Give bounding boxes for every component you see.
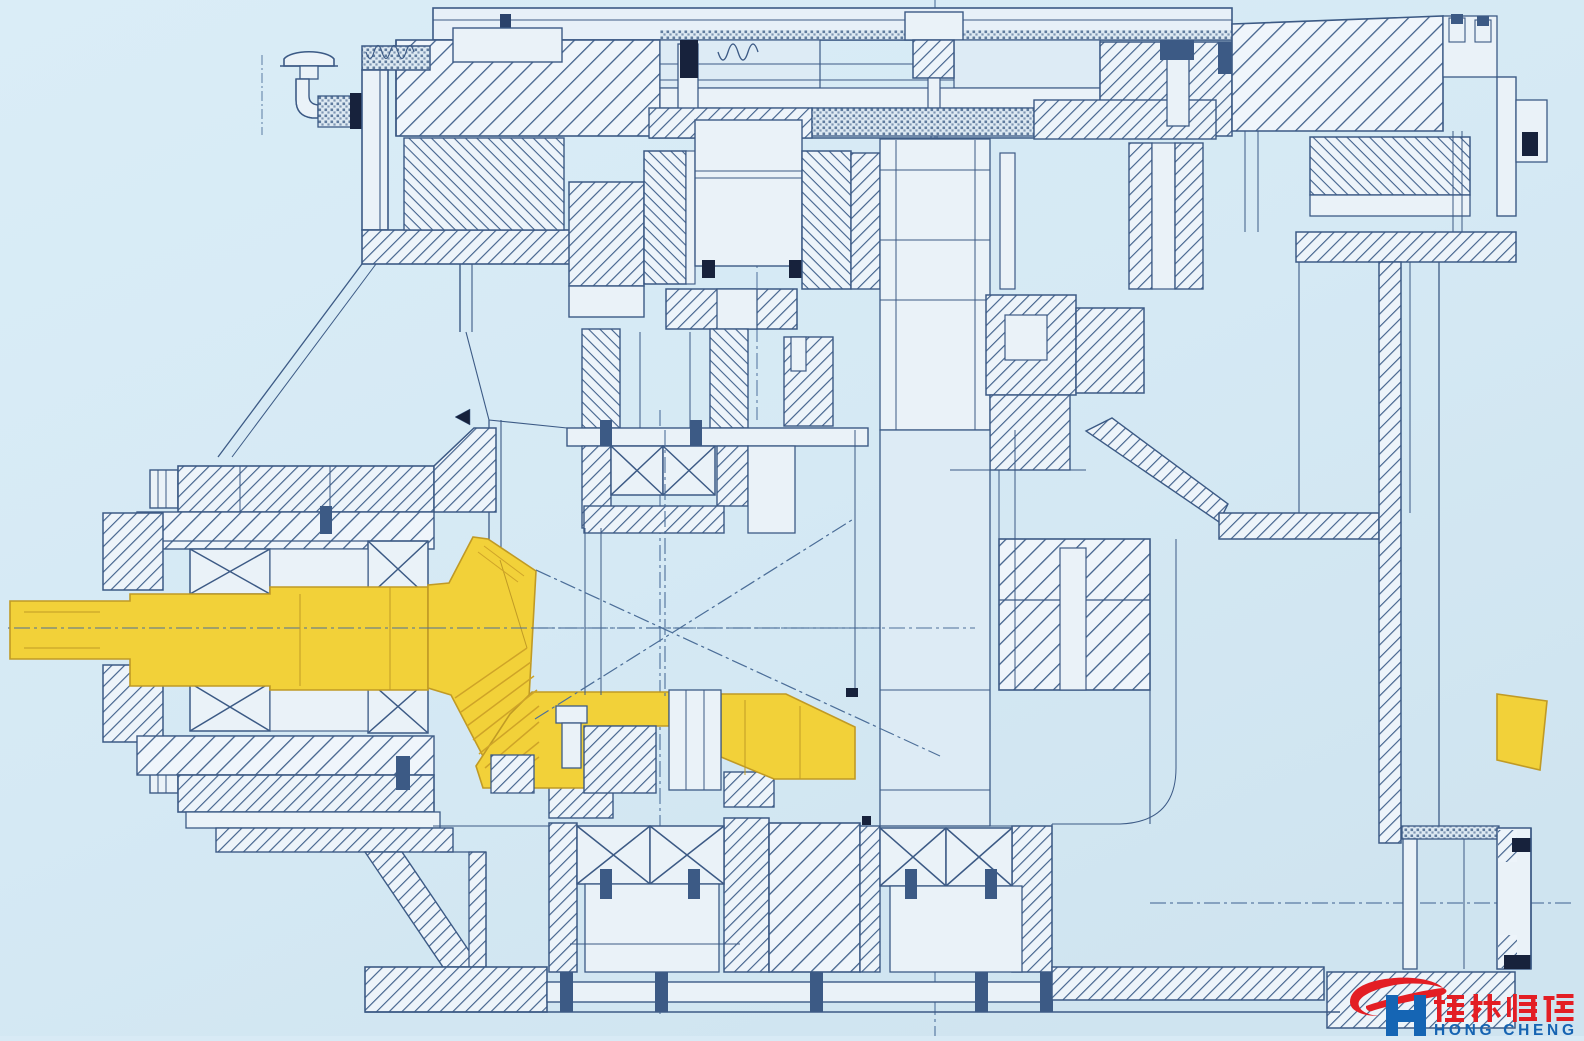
svg-text:HONG CHENG: HONG CHENG <box>1434 1022 1574 1036</box>
